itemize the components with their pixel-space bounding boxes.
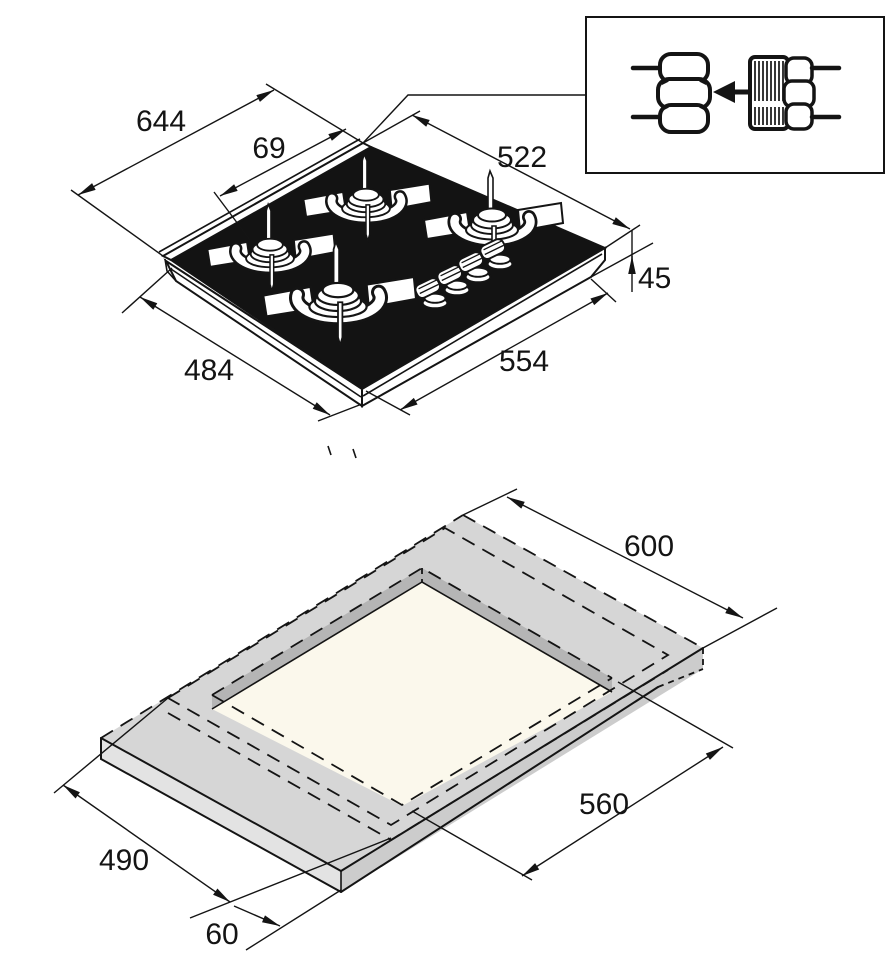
dim-label-490: 490: [99, 844, 149, 877]
dim-label-484: 484: [184, 354, 234, 387]
diagram-svg: 644 69 522 45 484: [0, 0, 895, 965]
page-crop-tick-1: [328, 446, 331, 455]
gas-connection-inset: [586, 17, 884, 173]
inset-leader-line: [363, 95, 587, 143]
dim-label-560: 560: [579, 788, 629, 821]
dim-label-600: 600: [624, 530, 674, 563]
dim-label-45: 45: [638, 262, 671, 295]
installation-diagram-page: 644 69 522 45 484: [0, 0, 895, 965]
dim-label-554: 554: [499, 345, 549, 378]
dim-label-60: 60: [205, 918, 238, 951]
worktop-cutout-view: 600 560 490 60: [54, 489, 777, 951]
hob-isometric-view: 644 69 522 45 484: [71, 17, 884, 458]
dim-label-522: 522: [497, 141, 547, 174]
page-crop-tick-2: [353, 449, 356, 458]
dim-label-644: 644: [136, 105, 186, 138]
dim-label-69: 69: [252, 132, 285, 165]
